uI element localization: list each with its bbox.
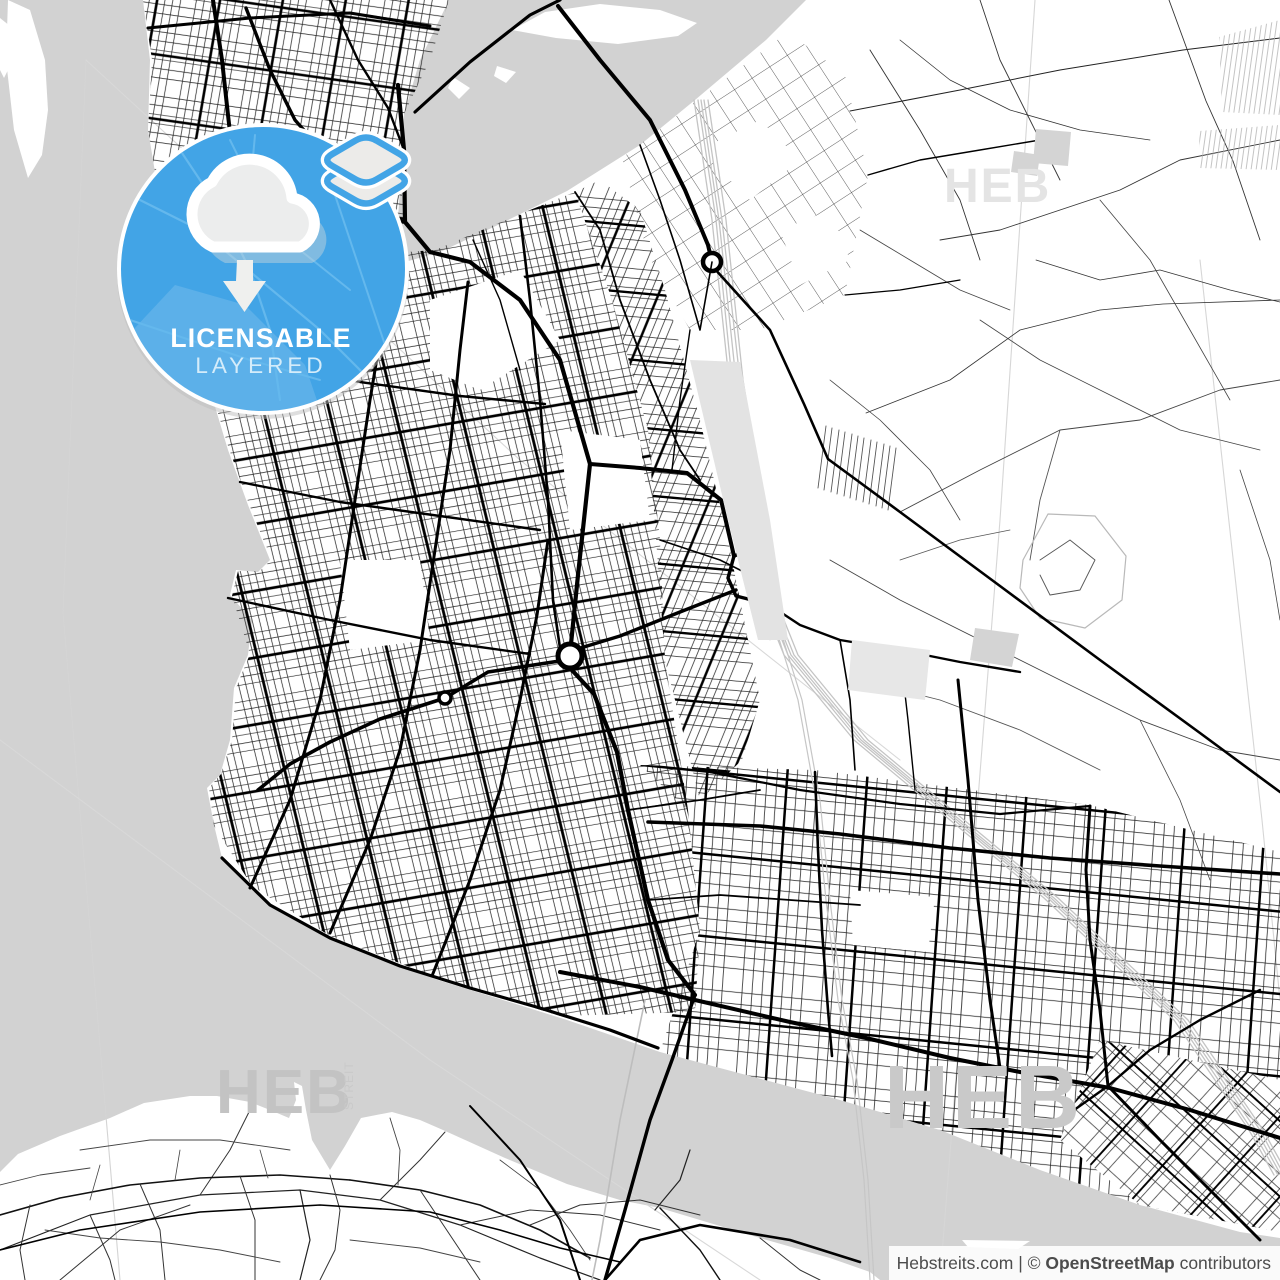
svg-text:HEB: HEB (884, 1048, 1083, 1148)
svg-text:STREIT: STREIT (342, 1061, 356, 1110)
svg-text:LICENSABLE: LICENSABLE (170, 323, 351, 353)
svg-text:Hebstreits.com | © OpenStreetM: Hebstreits.com | © OpenStreetMap contrib… (897, 1253, 1272, 1273)
svg-text:HEB: HEB (216, 1058, 353, 1127)
svg-text:LAYERED: LAYERED (195, 353, 326, 378)
svg-text:HEB: HEB (944, 160, 1051, 213)
